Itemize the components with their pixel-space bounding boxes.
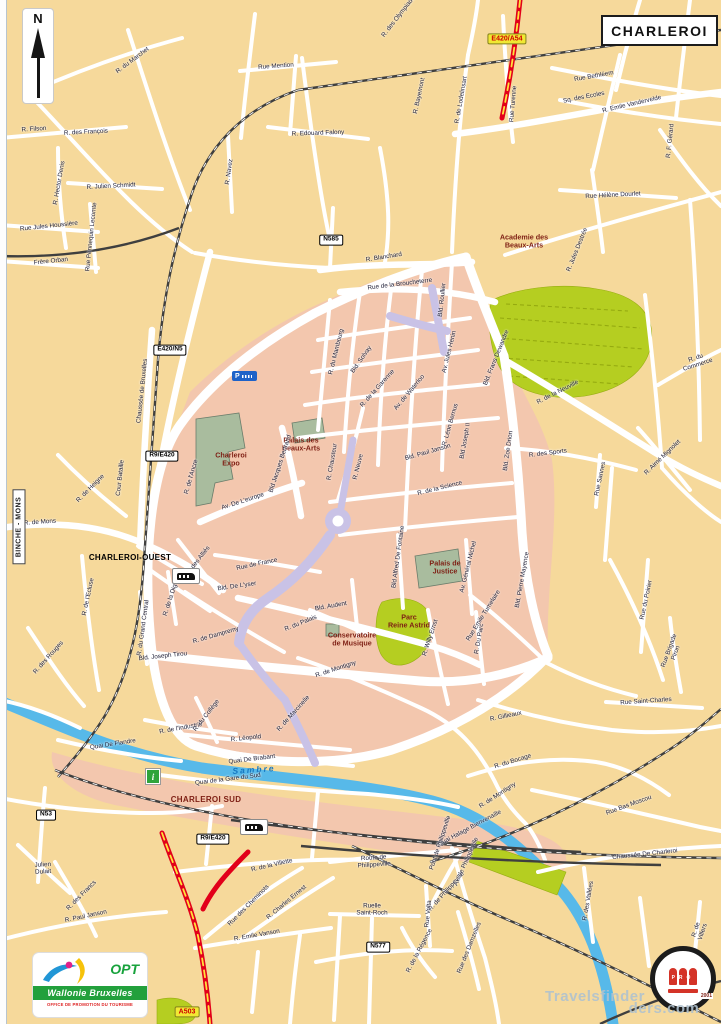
compass-rose: N [22, 8, 54, 104]
region-direction-tab: BINCHE - MONS [13, 490, 26, 565]
train-icon [177, 573, 195, 580]
ring-roundabout-center [333, 516, 344, 527]
train-station-icon [240, 819, 268, 835]
opt-region-label: Wallonie Bruxelles [47, 988, 132, 998]
opt-caption: OFFICE DE PROMOTION DU TOURISME [33, 1002, 147, 1007]
north-arrow-icon [31, 28, 45, 58]
opt-tourism-logo: OPT Wallonie Bruxelles OFFICE DE PROMOTI… [33, 953, 147, 1017]
parking-icon: P [232, 371, 257, 381]
seal-base-bar [668, 989, 698, 993]
train-icon [245, 824, 263, 831]
page-edge [0, 0, 7, 1024]
opt-swoosh-icon [39, 956, 95, 988]
parking-dots [242, 375, 252, 378]
info-letter: i [152, 772, 155, 782]
north-arrow-tail [37, 58, 40, 98]
map-title: CHARLEROI [601, 15, 718, 46]
opt-acronym: OPT [110, 961, 139, 977]
opt-region-band: Wallonie Bruxelles [33, 986, 147, 1000]
parking-letter: P [235, 373, 240, 380]
train-station-icon [172, 568, 200, 584]
compass-north-label: N [33, 11, 42, 26]
map-artwork [0, 0, 721, 1024]
seal-letters: PRO [672, 975, 695, 981]
publisher-seal-logo: PRO 2001 [650, 946, 716, 1012]
city-map-charleroi: N CHARLEROI BINCHE - MONS P i E420/A54A5… [0, 0, 721, 1024]
info-icon: i [146, 769, 160, 784]
seal-year: 2001 [700, 993, 713, 999]
